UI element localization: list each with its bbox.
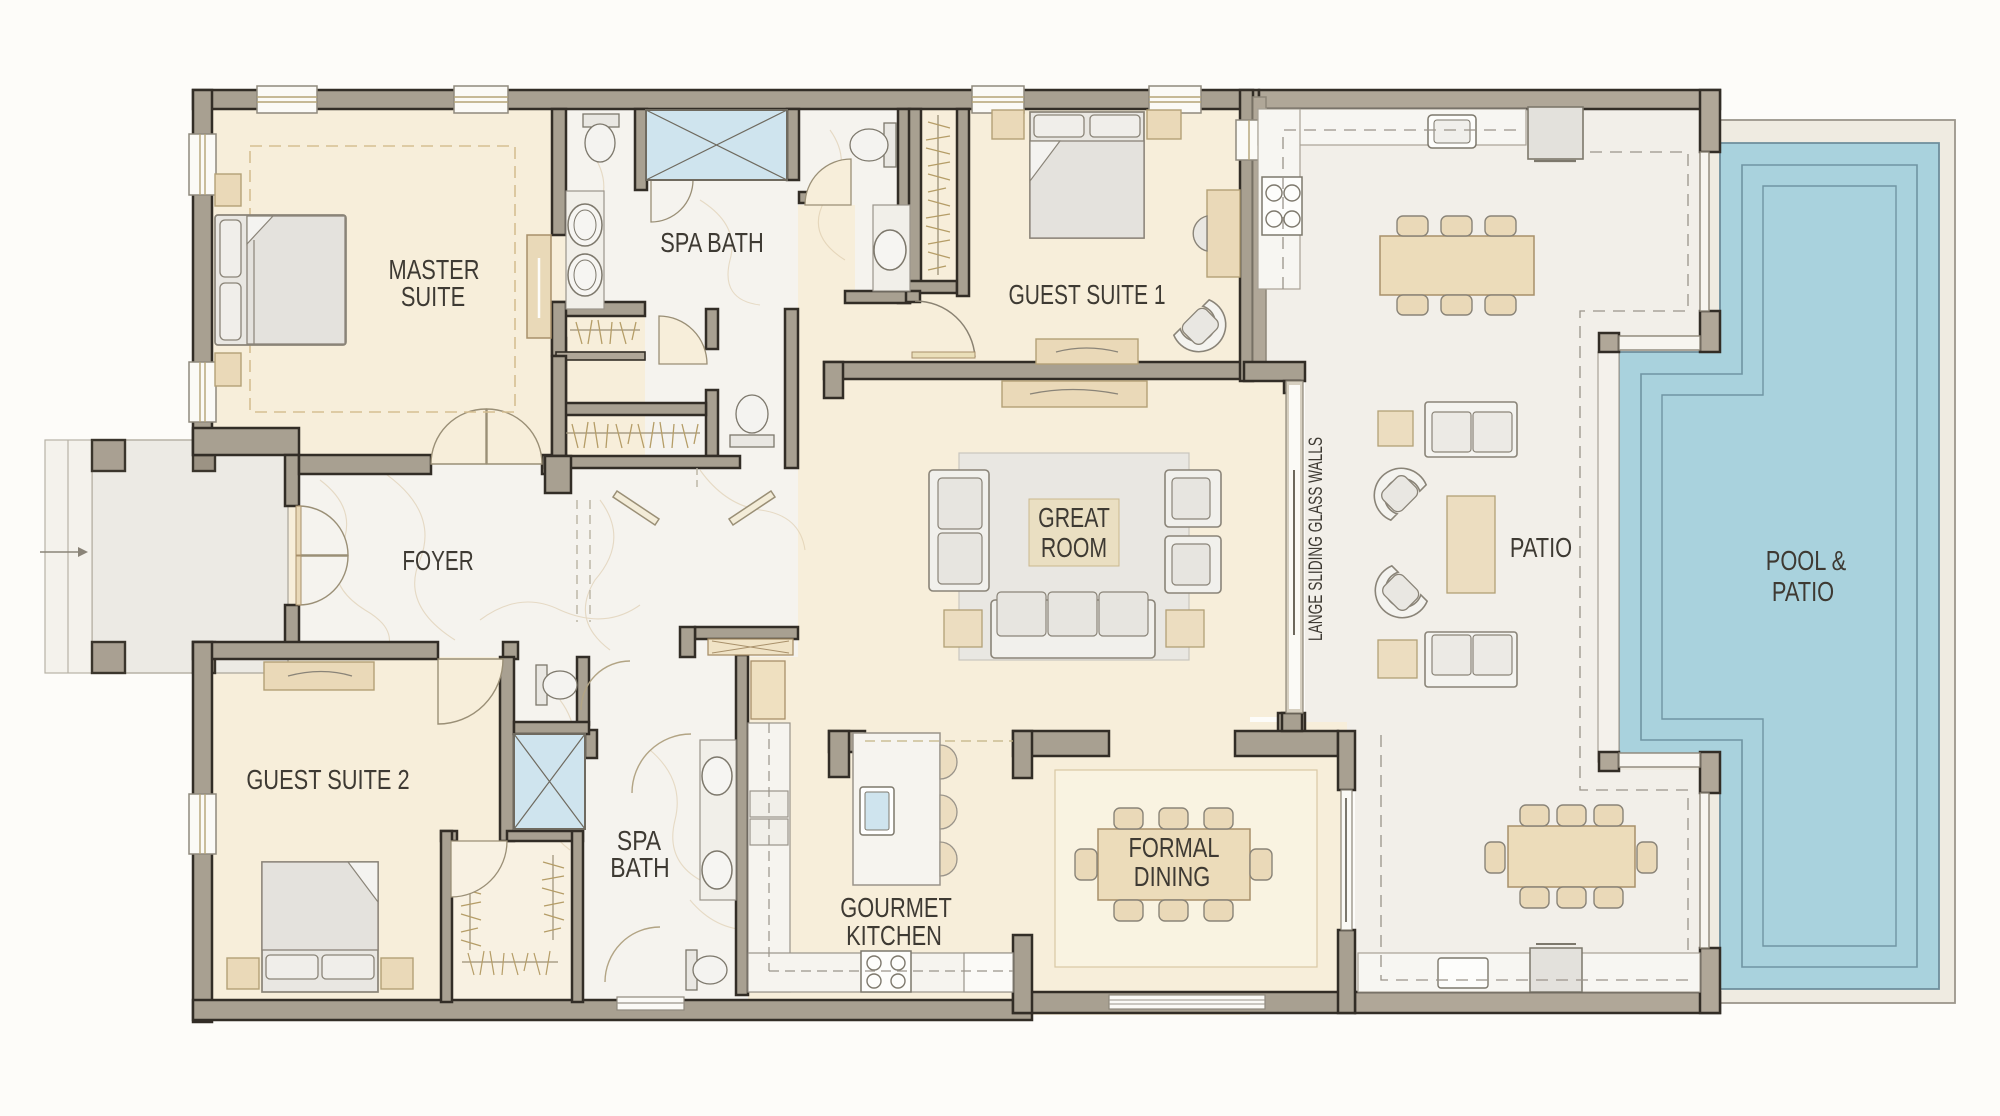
svg-text:GREAT: GREAT — [1038, 502, 1110, 534]
svg-text:ROOM: ROOM — [1041, 532, 1107, 564]
svg-text:PATIO: PATIO — [1772, 576, 1834, 607]
svg-text:DINING: DINING — [1134, 861, 1210, 892]
svg-text:FOYER: FOYER — [402, 546, 473, 577]
svg-text:GUEST SUITE 1: GUEST SUITE 1 — [1008, 280, 1165, 311]
svg-text:LANGE SLIDING GLASS WALLS: LANGE SLIDING GLASS WALLS — [1305, 437, 1327, 641]
svg-text:GUEST SUITE 2: GUEST SUITE 2 — [246, 764, 409, 795]
svg-text:PATIO: PATIO — [1510, 532, 1572, 563]
svg-text:SUITE: SUITE — [401, 281, 465, 312]
svg-text:POOL &: POOL & — [1766, 545, 1847, 576]
svg-text:KITCHEN: KITCHEN — [846, 920, 942, 951]
svg-text:GOURMET: GOURMET — [840, 892, 952, 923]
svg-text:SPA BATH: SPA BATH — [660, 227, 764, 258]
svg-text:FORMAL: FORMAL — [1129, 832, 1220, 863]
svg-text:BATH: BATH — [610, 853, 670, 884]
